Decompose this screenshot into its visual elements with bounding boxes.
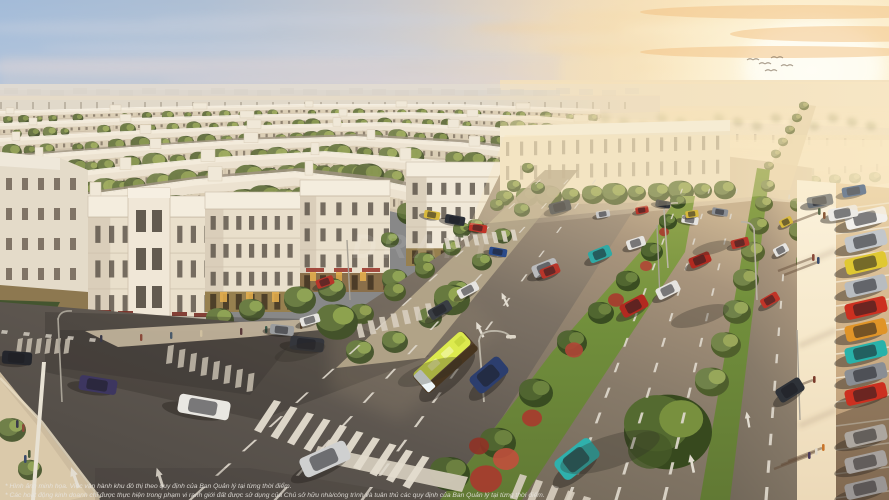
svg-text:DRAFT: DRAFT [352, 228, 497, 266]
svg-text:* Các hoạt động kinh doanh chỉ: * Các hoạt động kinh doanh chỉ được thực… [5, 491, 545, 499]
svg-text:* Hình ảnh minh họa. Việc vận: * Hình ảnh minh họa. Việc vận hành khu đ… [5, 482, 292, 490]
